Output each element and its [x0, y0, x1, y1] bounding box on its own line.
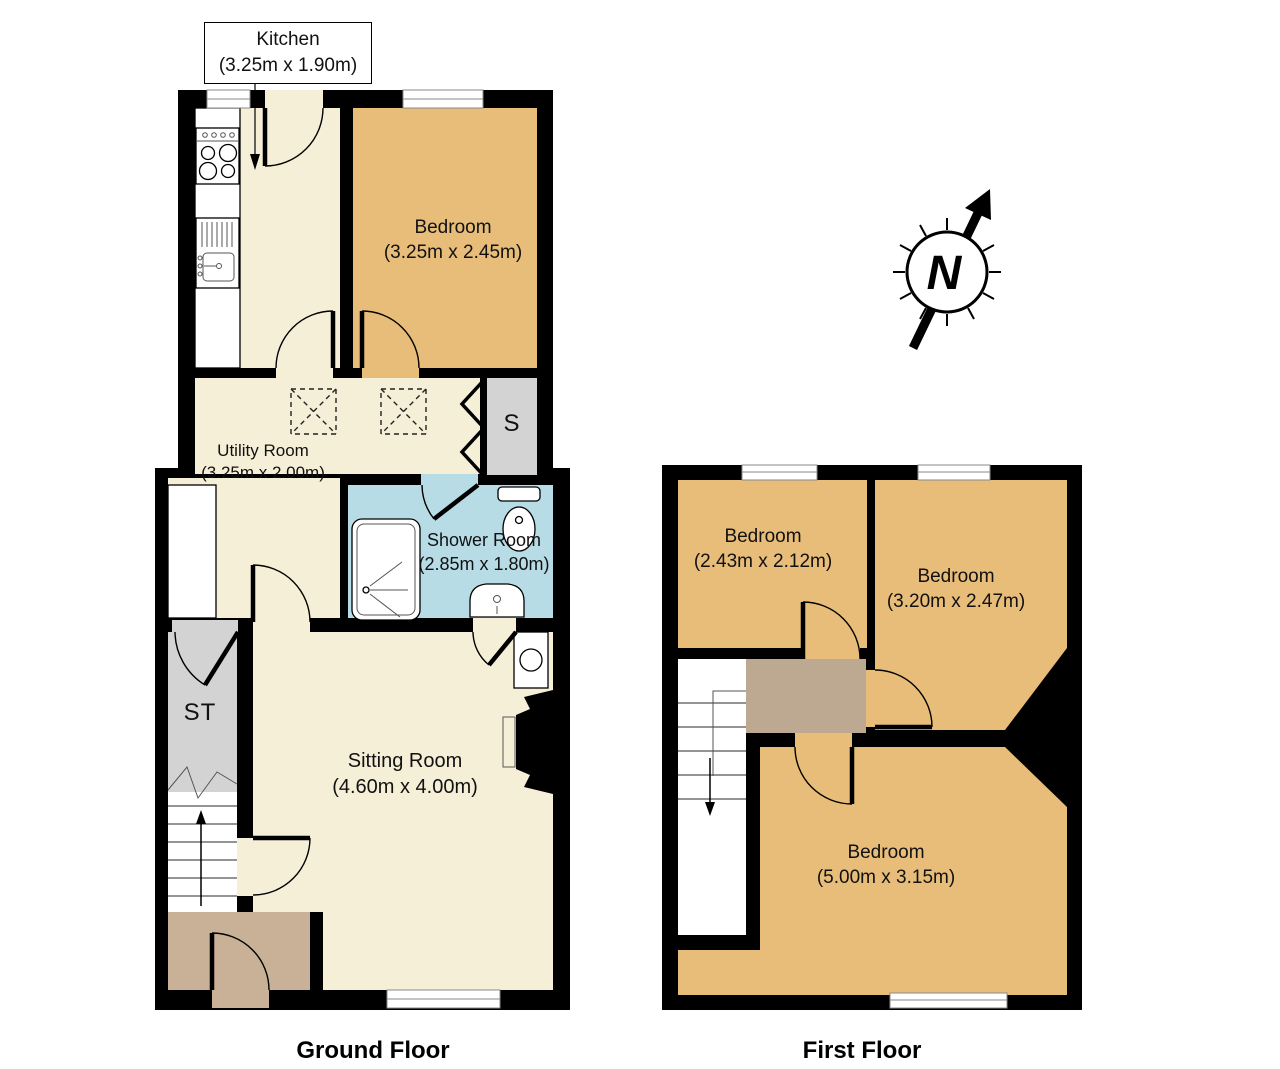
room-label-first-bedroom3: Bedroom (5.00m x 3.15m): [817, 840, 955, 890]
shower-door-opening: [421, 474, 478, 485]
ground-stairs-floor: [168, 792, 237, 912]
shower-tray-icon: [352, 519, 420, 620]
floorplan-canvas: N Kitchen (3.25m x 1.90m) Bedroom (3.25m…: [0, 0, 1280, 1069]
room-label-st: ST: [184, 697, 217, 729]
bedroom1-door-opening: [803, 648, 860, 659]
floorplan-graphic: N: [0, 0, 1280, 1069]
ground-floor-title: Ground Floor: [296, 1037, 449, 1065]
bedroom2-door-opening: [866, 670, 875, 727]
kitchen-callout: Kitchen (3.25m x 1.90m): [204, 22, 372, 84]
first-stairs-floor: [678, 659, 746, 935]
compass-north-letter: N: [927, 247, 963, 300]
bedroom-door-opening: [362, 368, 419, 378]
kitchen-door-opening: [276, 368, 333, 378]
room-label-utility: Utility Room (3.25m x 2.00m): [201, 440, 325, 485]
sink-icon: [514, 632, 548, 688]
landing-floor: [746, 659, 866, 733]
st-door-opening: [172, 620, 238, 632]
hob-icon: [196, 128, 239, 184]
room-label-first-bedroom1: Bedroom (2.43m x 2.12m): [694, 524, 832, 574]
sitting-room-floor-lower: [323, 912, 553, 990]
back-door-opening: [265, 90, 323, 108]
kitchen-sink-icon: [196, 218, 239, 288]
shower-sitting-door-opening: [473, 618, 516, 632]
room-label-s: S: [503, 408, 520, 440]
kitchen-callout-dims: (3.25m x 1.90m): [205, 53, 371, 79]
room-label-ground-bedroom: Bedroom (3.25m x 2.45m): [384, 215, 522, 265]
hall-cupboard-recess: [168, 485, 216, 618]
compass-icon: N: [893, 189, 1001, 348]
first-floor-title: First Floor: [803, 1037, 922, 1065]
kitchen-callout-name: Kitchen: [205, 27, 371, 53]
entrance-hall-floor: [168, 912, 310, 990]
bedroom3-door-opening: [795, 733, 852, 747]
room-label-sitting: Sitting Room (4.60m x 4.00m): [332, 748, 478, 801]
room-label-shower: Shower Room (2.85m x 1.80m): [418, 529, 549, 577]
hall-sitting-door-opening: [237, 838, 253, 896]
basin-icon: [470, 584, 524, 617]
room-label-first-bedroom2: Bedroom (3.20m x 2.47m): [887, 564, 1025, 614]
utility-sitting-door-opening: [253, 618, 310, 632]
front-door-opening: [212, 990, 269, 1008]
